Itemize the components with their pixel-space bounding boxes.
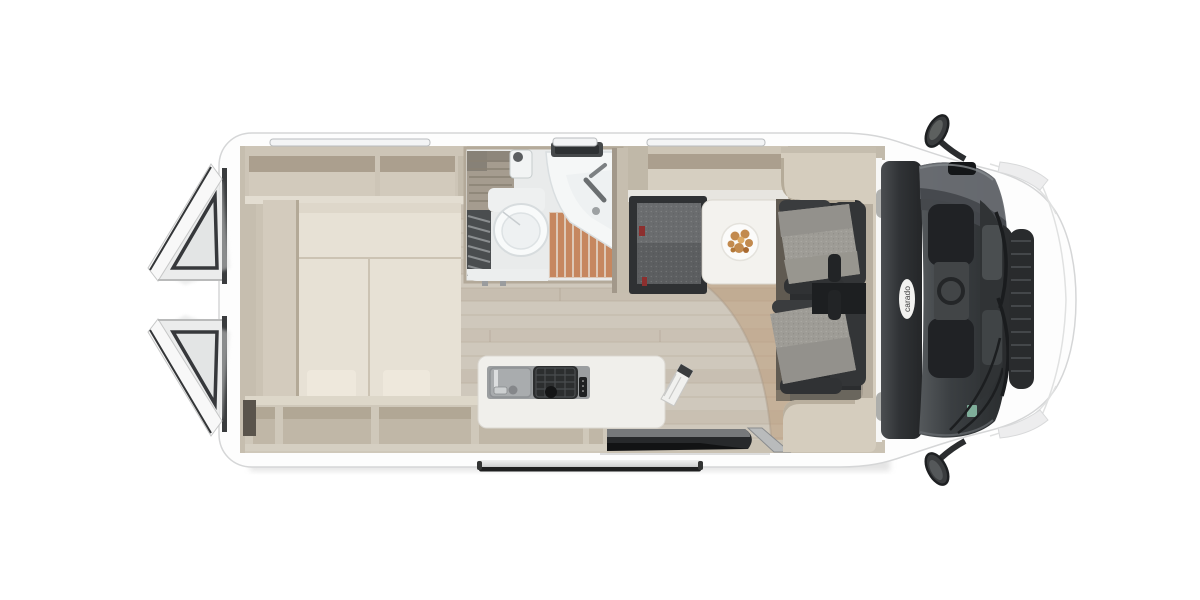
svg-text:carado: carado	[902, 286, 912, 312]
